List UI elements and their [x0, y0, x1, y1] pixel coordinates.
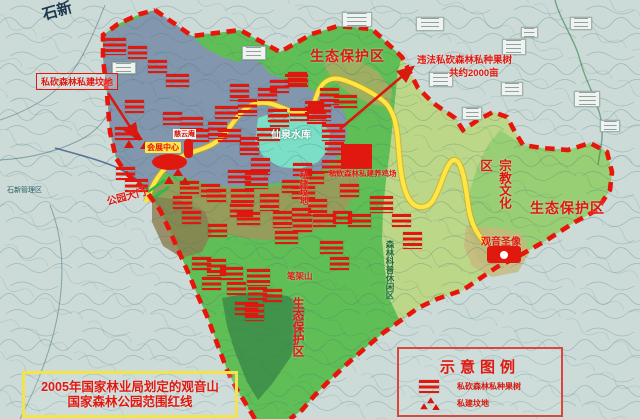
illegal-logging-marker — [218, 129, 241, 142]
illegal-logging-marker — [173, 196, 192, 209]
illegal-logging-marker — [273, 211, 292, 228]
illegal-logging-marker — [263, 289, 282, 302]
illegal-logging-marker — [275, 231, 298, 244]
illegal-logging-marker — [220, 267, 243, 280]
zone-label-eco-right: 生态保护区 — [530, 198, 605, 218]
red-bars-icon — [419, 380, 439, 393]
illegal-logging-marker — [245, 304, 264, 321]
legend-item-graves-label: 私建坟地 — [457, 398, 489, 409]
base-map-label-box — [501, 82, 523, 96]
base-map-label-box — [416, 17, 444, 31]
illegal-logging-marker — [270, 80, 289, 93]
illegal-logging-marker — [334, 95, 357, 108]
base-map-label-box — [600, 120, 620, 132]
illegal-logging-marker — [260, 194, 279, 211]
base-map-label-box — [462, 107, 482, 120]
illegal-logging-marker — [207, 189, 226, 202]
illegal-logging-marker — [247, 269, 270, 286]
illegal-logging-marker — [215, 106, 238, 119]
map-canvas: 石新 石新管理区 私砍森林私建坟地 违法私砍森林私种果树 共约2000亩 生态保… — [0, 0, 640, 419]
legend-item-logging-label: 私砍森林私种果树 — [457, 381, 521, 392]
illegal-logging-marker — [340, 184, 359, 197]
ciyun-temple-label: 慈云庵 — [173, 129, 196, 139]
base-map-label-box — [242, 46, 266, 60]
illegal-logging-marker — [227, 282, 246, 295]
convention-center-label: 会展中心 — [145, 142, 181, 153]
illegal-logging-marker — [307, 111, 326, 124]
illegal-logging-marker — [348, 214, 371, 227]
illegal-logging-marker — [148, 60, 167, 73]
legend: 示意图例 私砍森林私种果树 私建坟地 — [397, 347, 563, 417]
guanyin-statue-icon — [487, 246, 521, 263]
illegal-logging-marker — [208, 224, 227, 237]
illegal-logging-marker — [392, 214, 411, 227]
illegal-logging-marker — [103, 38, 126, 55]
base-map-label-box — [570, 17, 592, 30]
orchard-note-line2: 共约2000亩 — [449, 65, 499, 79]
chicken-farm-label: 私砍森林私建养鸡场 — [329, 168, 397, 179]
zone-label-religion-culture: 宗教文化区 — [476, 159, 514, 221]
zone-label-eco-top: 生态保护区 — [310, 46, 385, 66]
illegal-logging-marker — [370, 196, 393, 213]
illegal-logging-marker — [322, 124, 345, 141]
illegal-logging-marker — [288, 72, 307, 85]
orchard-note-line1: 违法私砍森林私种果树 — [417, 52, 512, 66]
base-map-label-box — [521, 27, 538, 38]
base-map-label-box — [342, 12, 372, 27]
illegal-logging-marker — [403, 232, 422, 249]
xianquan-reservoir-label: 仙泉水库 — [271, 126, 311, 141]
illegal-logging-marker — [245, 172, 268, 189]
redline-note-line2: 国家森林公园范围红线 — [67, 395, 192, 410]
illegal-logging-marker — [166, 74, 189, 87]
redline-note-line1: 2005年国家林业局划定的观音山 — [41, 380, 219, 395]
illegal-logging-marker — [202, 277, 221, 290]
grave-site-marker — [164, 167, 190, 187]
base-admin-area-name: 石新管理区 — [7, 185, 42, 195]
zone-label-eco-bottom: 生态保护区 — [290, 297, 307, 369]
convention-center-icon — [152, 154, 187, 170]
illegal-logging-marker — [128, 46, 147, 59]
base-map-label-box — [574, 91, 600, 107]
chicken-farm-icon — [341, 144, 372, 169]
red-graves-icon — [420, 397, 440, 412]
zone-label-forest-science: 森林科普休闲区 — [384, 240, 396, 300]
legend-title: 示意图例 — [399, 356, 561, 377]
illegal-logging-marker — [182, 211, 201, 224]
redline-note-box: 2005年国家林业局划定的观音山 国家森林公园范围红线 — [22, 371, 238, 418]
ciyun-temple-icon — [184, 139, 193, 158]
bijia-mountain-label: 笔架山 — [287, 270, 313, 282]
illegal-logging-marker — [125, 100, 144, 113]
illegal-logging-marker — [320, 241, 343, 254]
illegal-logging-marker — [238, 99, 257, 116]
grave-vertical-label: 私建坟地 — [298, 171, 310, 209]
grave-note-label: 私砍森林私建坟地 — [36, 73, 118, 90]
illegal-logging-marker — [237, 212, 260, 225]
illegal-logging-marker — [330, 257, 349, 270]
